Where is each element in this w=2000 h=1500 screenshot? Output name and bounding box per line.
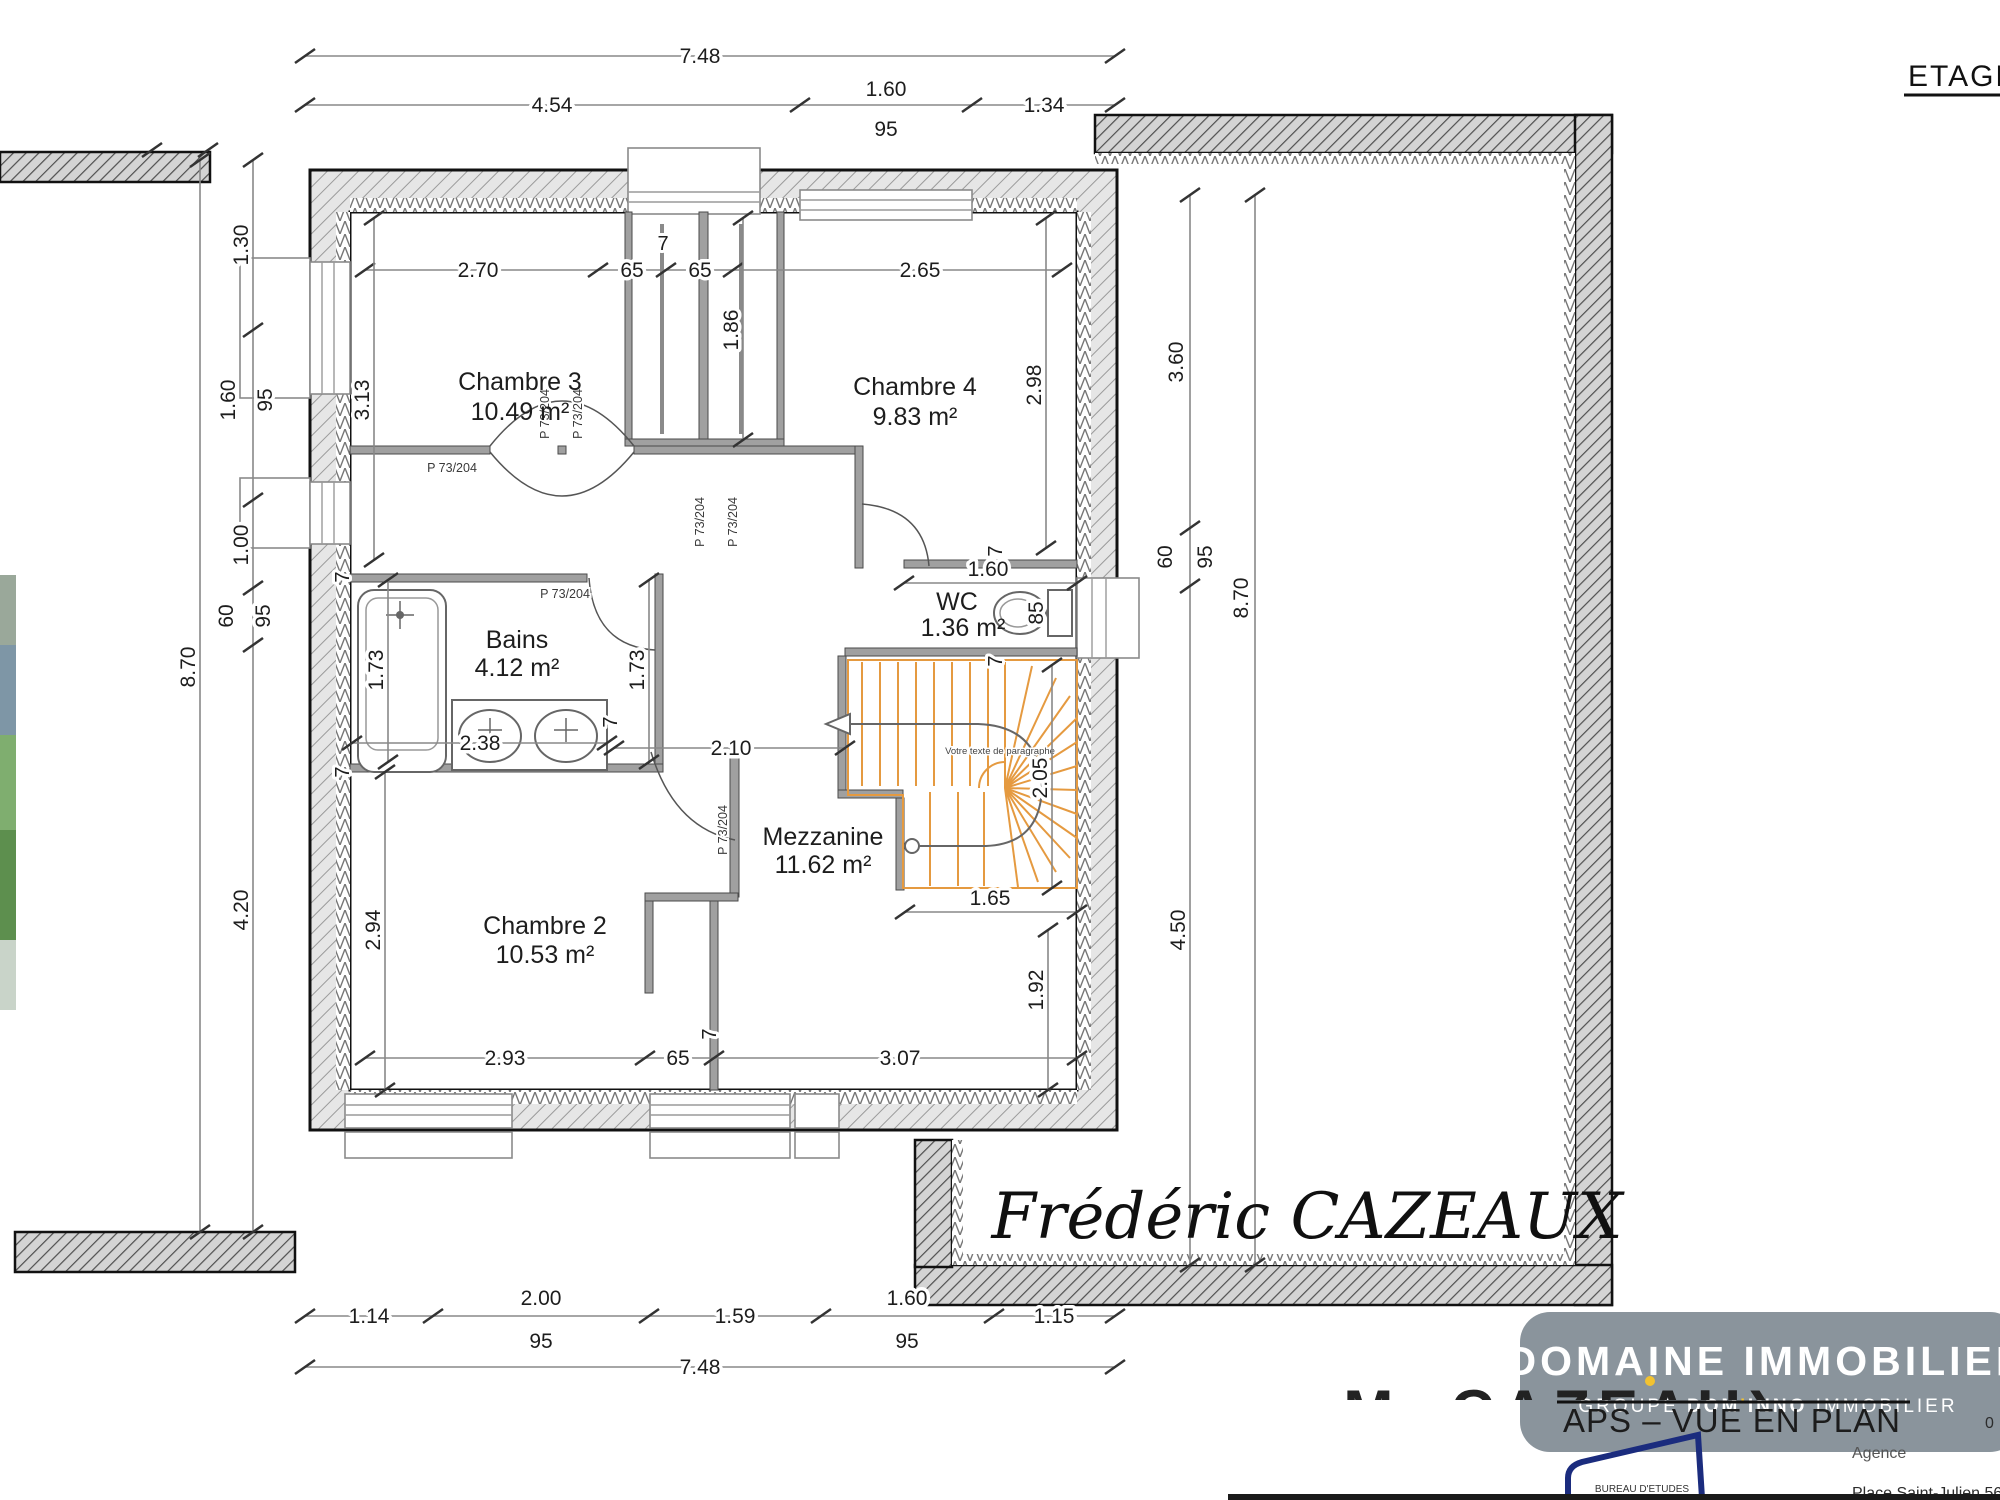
dim-label: 1.60 (887, 1287, 928, 1310)
dim-label: 7.48 (680, 1356, 721, 1379)
stair-newel (905, 839, 919, 853)
door-label: P 73/204 (571, 389, 585, 439)
top-left-wall-strip (0, 152, 210, 182)
window (800, 190, 972, 220)
toilet-tank (1048, 590, 1072, 636)
dim-label: 1.60 (866, 78, 907, 101)
shutter-box (240, 258, 310, 398)
dim-wall-thickness: 7 (699, 1028, 721, 1039)
bottom-left-wall-strip (15, 1232, 295, 1272)
dim-sill: 95 (529, 1330, 552, 1353)
dim-label: 1.73 (365, 650, 388, 691)
phone-partial: 0 (1985, 1415, 1994, 1432)
window (650, 1094, 790, 1128)
shutter-box (345, 1132, 512, 1158)
dim-label: 1.34 (1024, 94, 1065, 117)
room-name: Chambre 2 (483, 912, 607, 940)
room-area: 10.53 m² (496, 941, 595, 969)
wing-top-wall (1095, 115, 1612, 153)
dim-wall-thickness: 7 (332, 766, 354, 777)
bottom-border (1228, 1494, 2000, 1500)
dim-label: 7.48 (680, 45, 721, 68)
shutter-box (650, 1132, 790, 1158)
interior-walls (350, 212, 1077, 1090)
floor-plan-page: P 73/204 P 73/204 P 73/204 P 73/204 P 73… (0, 0, 2000, 1500)
dim-label: 2.93 (485, 1047, 526, 1070)
branding: Frédéric CAZEAUX DOMAINE IMMOBILIER GROU… (990, 1180, 2000, 1500)
dim-wall-thickness: 7 (600, 716, 622, 727)
room-area: 9.83 m² (873, 403, 958, 431)
dim-label: 2.10 (711, 737, 752, 760)
dim-wall-thickness: 7 (985, 655, 1007, 666)
window (1077, 578, 1139, 658)
door-label: P 73/204 (693, 497, 707, 547)
dim-label: 1.65 (970, 887, 1011, 910)
dim-label: 3.13 (351, 380, 374, 421)
dim-label: 4.50 (1167, 910, 1190, 951)
dim-label: 2.38 (460, 732, 501, 755)
signature: Frédéric CAZEAUX (990, 1180, 1625, 1254)
room-area: 11.62 m² (775, 851, 872, 879)
dim-label: 65 (688, 259, 711, 282)
floor-plan-drawing: P 73/204 P 73/204 P 73/204 P 73/204 P 73… (0, 0, 2000, 1500)
dim-label: 60 (1154, 545, 1177, 568)
dim-label: 1.59 (715, 1305, 756, 1328)
dim-label: 85 (1025, 601, 1048, 624)
dim-label: 3.60 (1165, 342, 1188, 383)
dim-label: 60 (215, 604, 238, 627)
room-name: Bains (486, 626, 549, 654)
shutter-box (795, 1132, 839, 1158)
room-area: 1.36 m² (921, 614, 1006, 642)
header: ETAGE (1904, 60, 2000, 95)
dim-label: 8.70 (177, 647, 200, 688)
dim-label: 8.70 (1230, 578, 1253, 619)
dim-label: 1.30 (230, 225, 253, 266)
dim-label: 4.20 (230, 890, 253, 931)
wing-insulation (1095, 153, 1575, 164)
door-label: P 73/204 (540, 587, 590, 601)
door-label: P 73/204 (726, 497, 740, 547)
bureau-etudes-label: BUREAU D'ETUDES (1595, 1484, 1689, 1495)
dim-label: 1.73 (626, 650, 649, 691)
dim-label: 1.60 (968, 558, 1009, 581)
wing-left-stub-wall (915, 1140, 952, 1267)
dim-label: 1.92 (1025, 970, 1048, 1011)
stair-placeholder-text: Votre texte de paragraphe (945, 746, 1055, 757)
window (310, 262, 350, 394)
dim-label: 1.86 (720, 310, 743, 351)
dim-label: 1.00 (230, 525, 253, 566)
wing-insulation (1564, 153, 1575, 1265)
photo-sliver (0, 575, 16, 1010)
dim-label: 4.54 (532, 94, 573, 117)
dim-label: 2.05 (1029, 758, 1052, 799)
window (310, 482, 350, 544)
room-area: 4.12 m² (475, 654, 560, 682)
window (628, 148, 760, 214)
room-name: Chambre 3 (458, 368, 582, 396)
doors: P 73/204 P 73/204 P 73/204 P 73/204 P 73… (427, 389, 929, 855)
agence-label: Agence (1852, 1445, 1906, 1462)
dim-label: 1.15 (1034, 1305, 1075, 1328)
dim-label: 3.07 (880, 1047, 921, 1070)
wing-right-wall (1575, 115, 1612, 1305)
room-name: Chambre 4 (853, 373, 977, 401)
wing-insulation (952, 1140, 963, 1254)
dim-label: 1.14 (349, 1305, 390, 1328)
dim-wall-thickness: 7 (657, 233, 668, 255)
dim-wall-thickness: 7 (985, 545, 1007, 556)
dim-label: 2.70 (458, 259, 499, 282)
door-label: P 73/204 (716, 805, 730, 855)
logo-text: DOMAINE IMMOBILIER (1507, 1338, 2000, 1384)
dim-sill: 95 (252, 604, 275, 627)
room-name: WC (936, 588, 978, 616)
dim-wall-thickness: 7 (332, 571, 354, 582)
dim-label: 65 (620, 259, 643, 282)
room-area: 10.49 m² (471, 398, 570, 426)
document-title: APS – VUE EN PLAN (1563, 1402, 1901, 1439)
dim-label: 2.98 (1023, 365, 1046, 406)
dim-label: 2.00 (521, 1287, 562, 1310)
room-name: Mezzanine (763, 823, 884, 851)
window (795, 1094, 839, 1128)
dim-sill: 95 (895, 1330, 918, 1353)
dim-sill: 95 (254, 388, 277, 411)
dim-sill: 95 (874, 118, 897, 141)
dim-label: 2.65 (900, 259, 941, 282)
dim-label: 65 (666, 1047, 689, 1070)
page-title: ETAGE (1908, 60, 2000, 93)
dim-sill: 95 (1194, 545, 1217, 568)
door-label: P 73/204 (427, 461, 477, 475)
wing-bottom-wall (915, 1265, 1612, 1305)
window (345, 1094, 512, 1128)
dim-label: 1.60 (217, 380, 240, 421)
dim-label: 2.94 (362, 909, 385, 950)
